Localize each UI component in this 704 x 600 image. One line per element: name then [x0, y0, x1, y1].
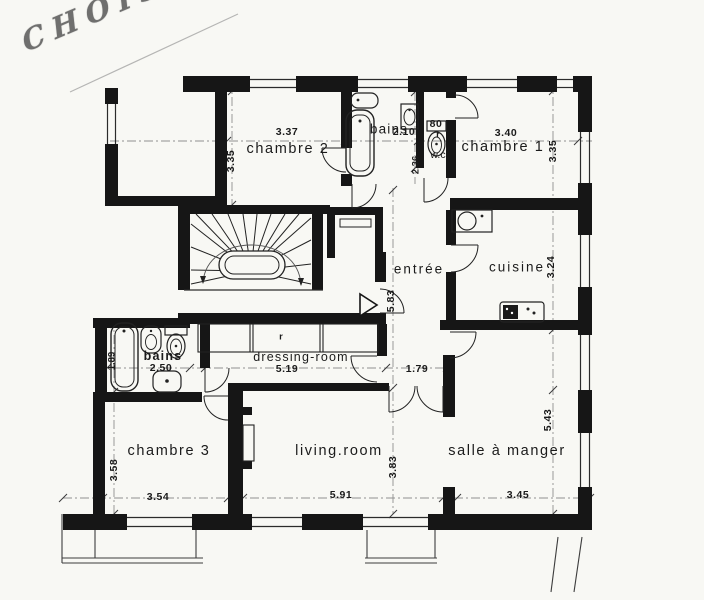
dim-chambre3-width: 3.54: [147, 492, 169, 503]
floor-plan: CHOISY chambre 2 chambre 1 bains w.c ent…: [0, 0, 704, 600]
label-closet-r: r: [279, 332, 283, 342]
dim-salle-width: 3.45: [507, 490, 529, 501]
closets: [198, 324, 378, 352]
dim-chambre1-height: 3.35: [548, 140, 559, 162]
room-label-chambre1: chambre 1: [462, 140, 545, 155]
dim-bains-top-height: 2.36: [411, 156, 421, 175]
room-label-salle: salle à manger: [448, 444, 566, 459]
dim-living-height: 3.83: [388, 456, 399, 478]
dim-dressing-width: 5.19: [276, 364, 298, 375]
dim-hall-width: 1.79: [406, 364, 428, 375]
elevator: [340, 219, 371, 227]
fireplace: [243, 425, 254, 461]
room-label-dressing: dressing-room: [253, 351, 349, 364]
washbasin-2: [153, 371, 181, 392]
room-label-chambre3: chambre 3: [128, 444, 211, 459]
room-label-cuisine: cuisine: [489, 260, 545, 274]
dim-chambre3-height: 3.58: [109, 459, 120, 481]
floor-plan-drawing: [0, 0, 704, 600]
bathtub-top: [346, 110, 374, 176]
entry-arrow: [360, 294, 377, 316]
dim-chambre1-width: 3.40: [495, 128, 517, 139]
dim-living-width: 5.91: [330, 490, 352, 501]
sink-top: [351, 93, 378, 108]
dim-entree-height: 5.83: [386, 290, 397, 312]
stove: [500, 302, 544, 322]
dim-wc-width: 80: [430, 119, 443, 130]
dim-salle-height: 5.43: [543, 409, 554, 431]
stairs: [191, 214, 311, 286]
room-label-living: living.room: [295, 444, 383, 459]
room-label-bains2: bains: [144, 350, 183, 363]
kitchen-sink: [452, 210, 492, 232]
dim-bains2-height: 1.89: [107, 352, 117, 371]
room-label-chambre2: chambre 2: [247, 142, 330, 157]
room-label-entree: entrée: [394, 262, 444, 276]
dim-chambre2-width: 3.37: [276, 127, 298, 138]
dim-bains-top-width: 2.10: [393, 127, 415, 138]
dim-bains2-width: 2.50: [150, 363, 172, 374]
dim-cuisine-height: 3.24: [546, 256, 557, 278]
label-wc-r: r: [436, 130, 440, 140]
room-label-wc: w.c: [430, 150, 445, 161]
dim-chambre2-height: 3.35: [226, 150, 237, 172]
